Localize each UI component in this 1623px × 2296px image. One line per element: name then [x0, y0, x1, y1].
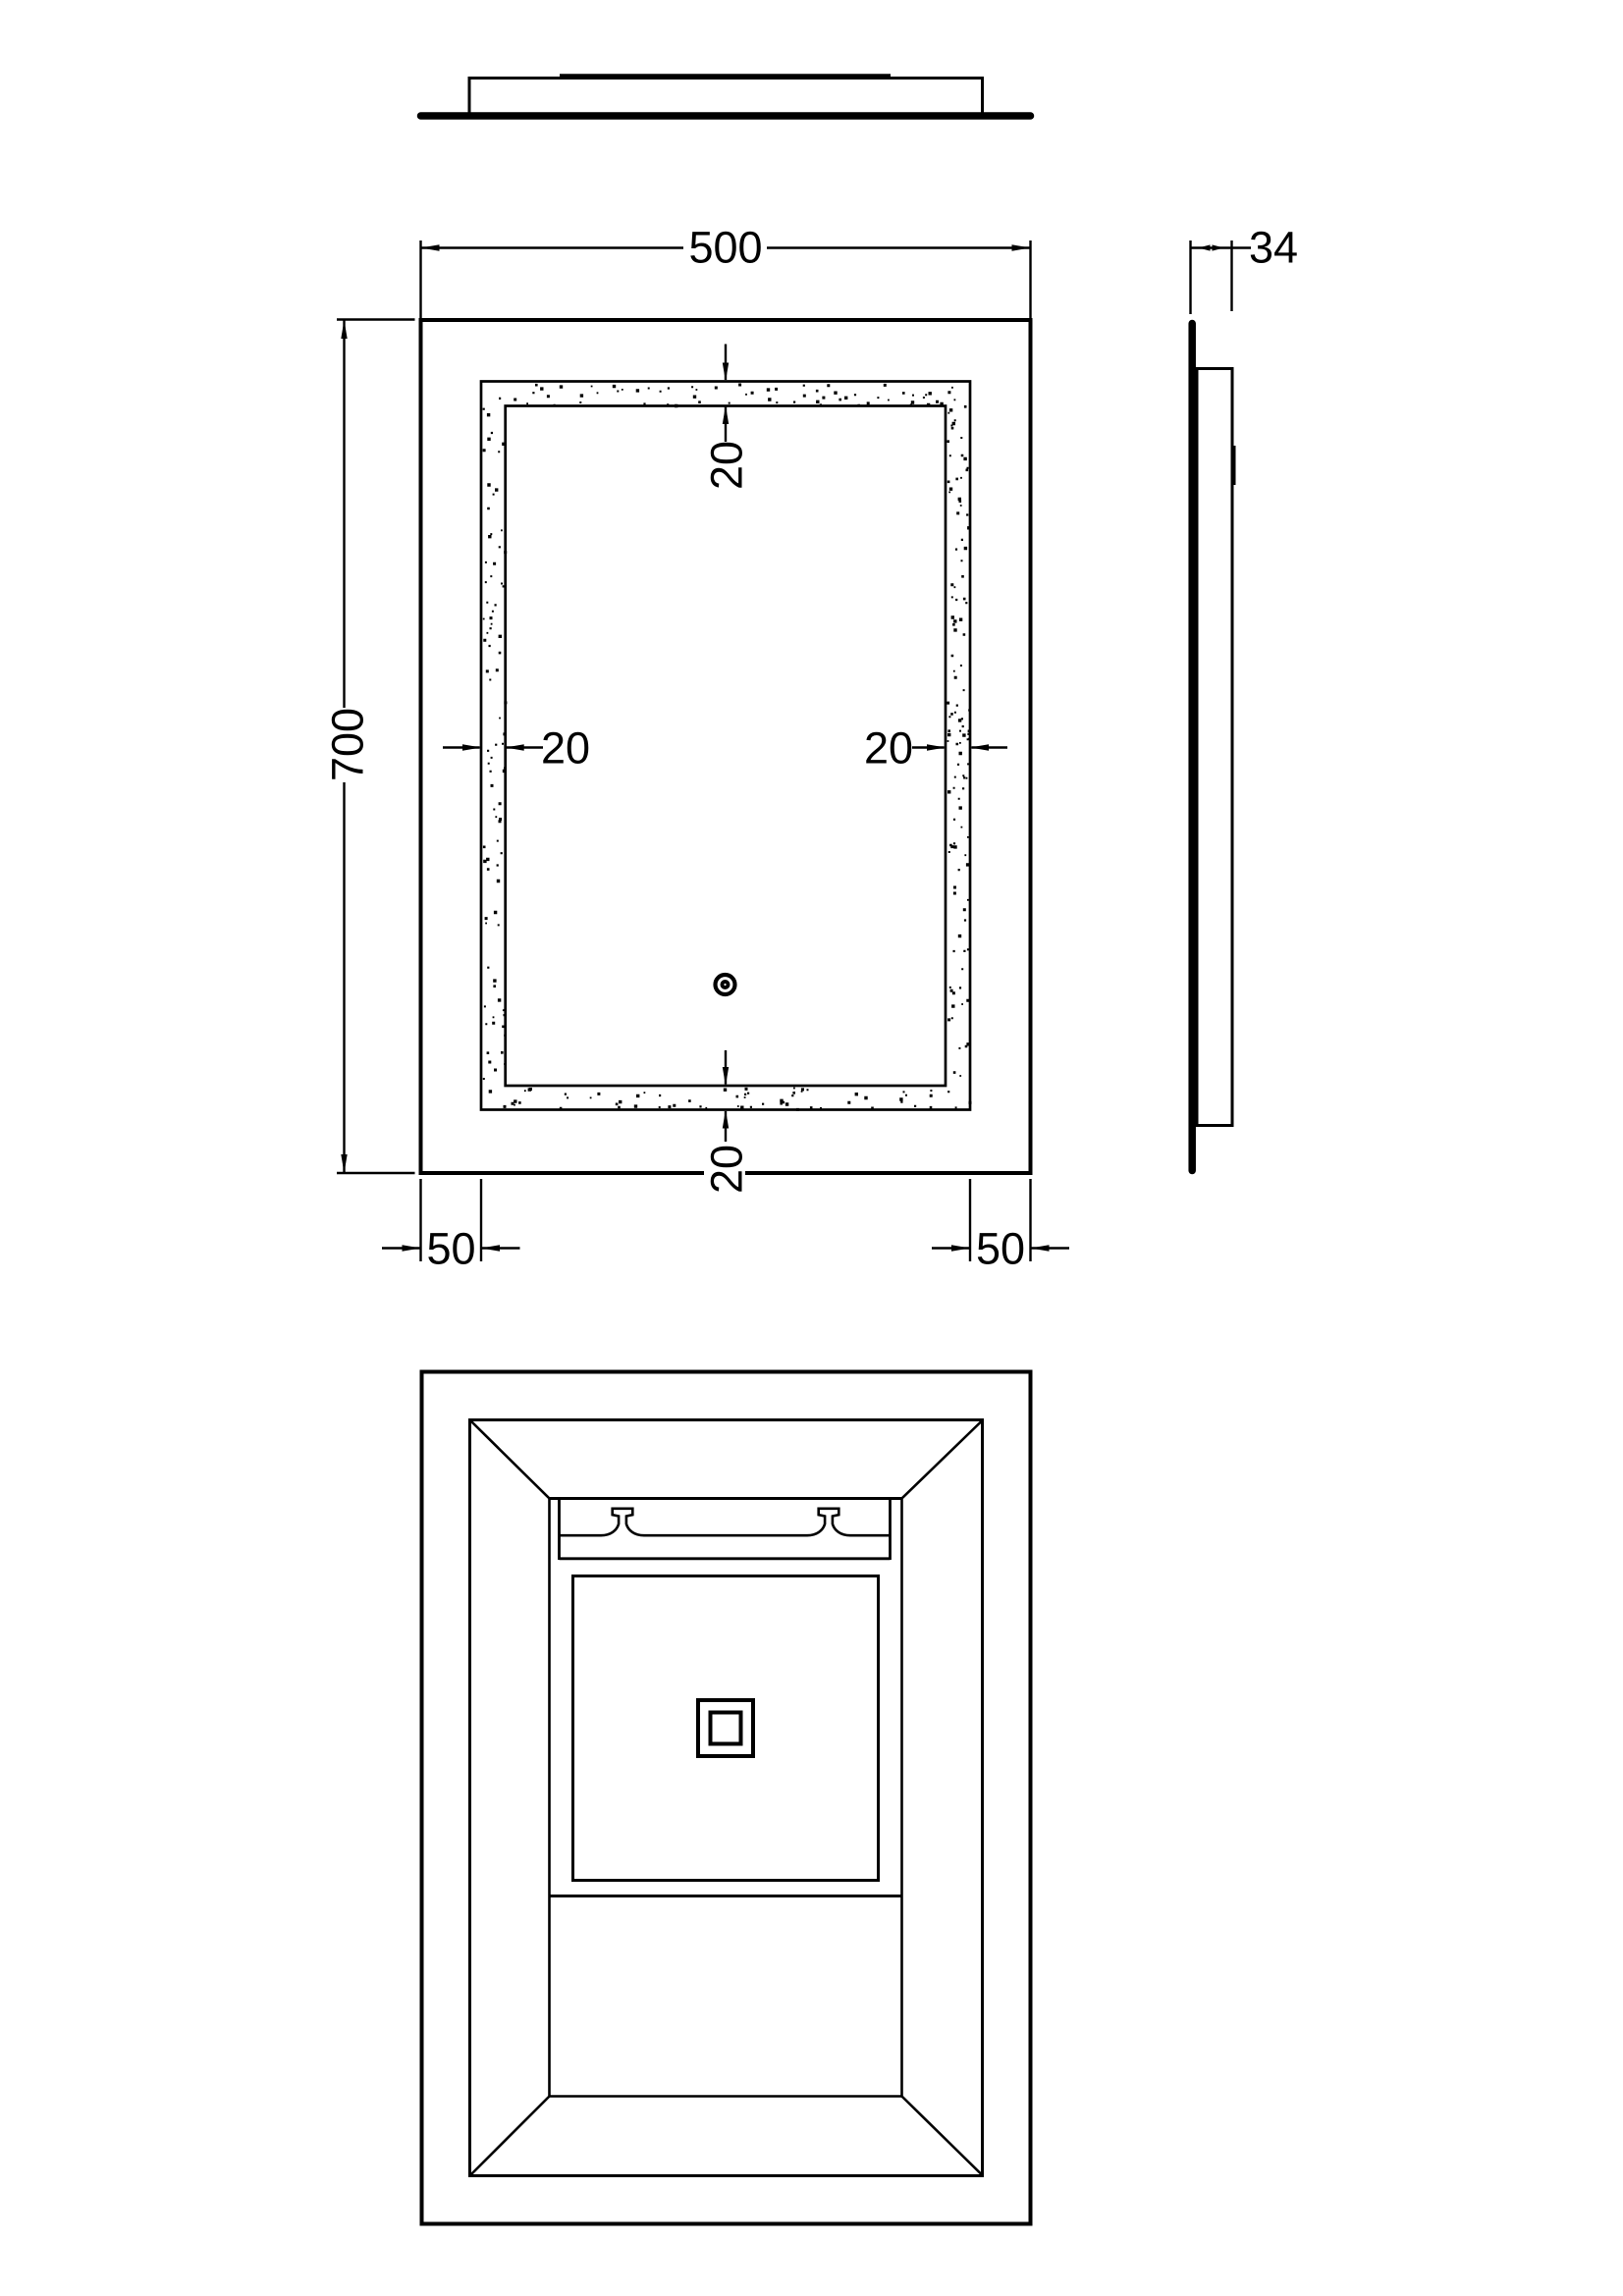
svg-text:500: 500 [688, 223, 762, 273]
svg-text:20: 20 [541, 723, 590, 774]
svg-text:50: 50 [427, 1224, 476, 1274]
svg-text:50: 50 [976, 1224, 1025, 1274]
svg-text:34: 34 [1249, 223, 1298, 273]
svg-text:20: 20 [702, 1145, 752, 1194]
svg-text:20: 20 [864, 723, 913, 774]
svg-text:20: 20 [702, 441, 752, 490]
svg-text:700: 700 [323, 708, 373, 781]
